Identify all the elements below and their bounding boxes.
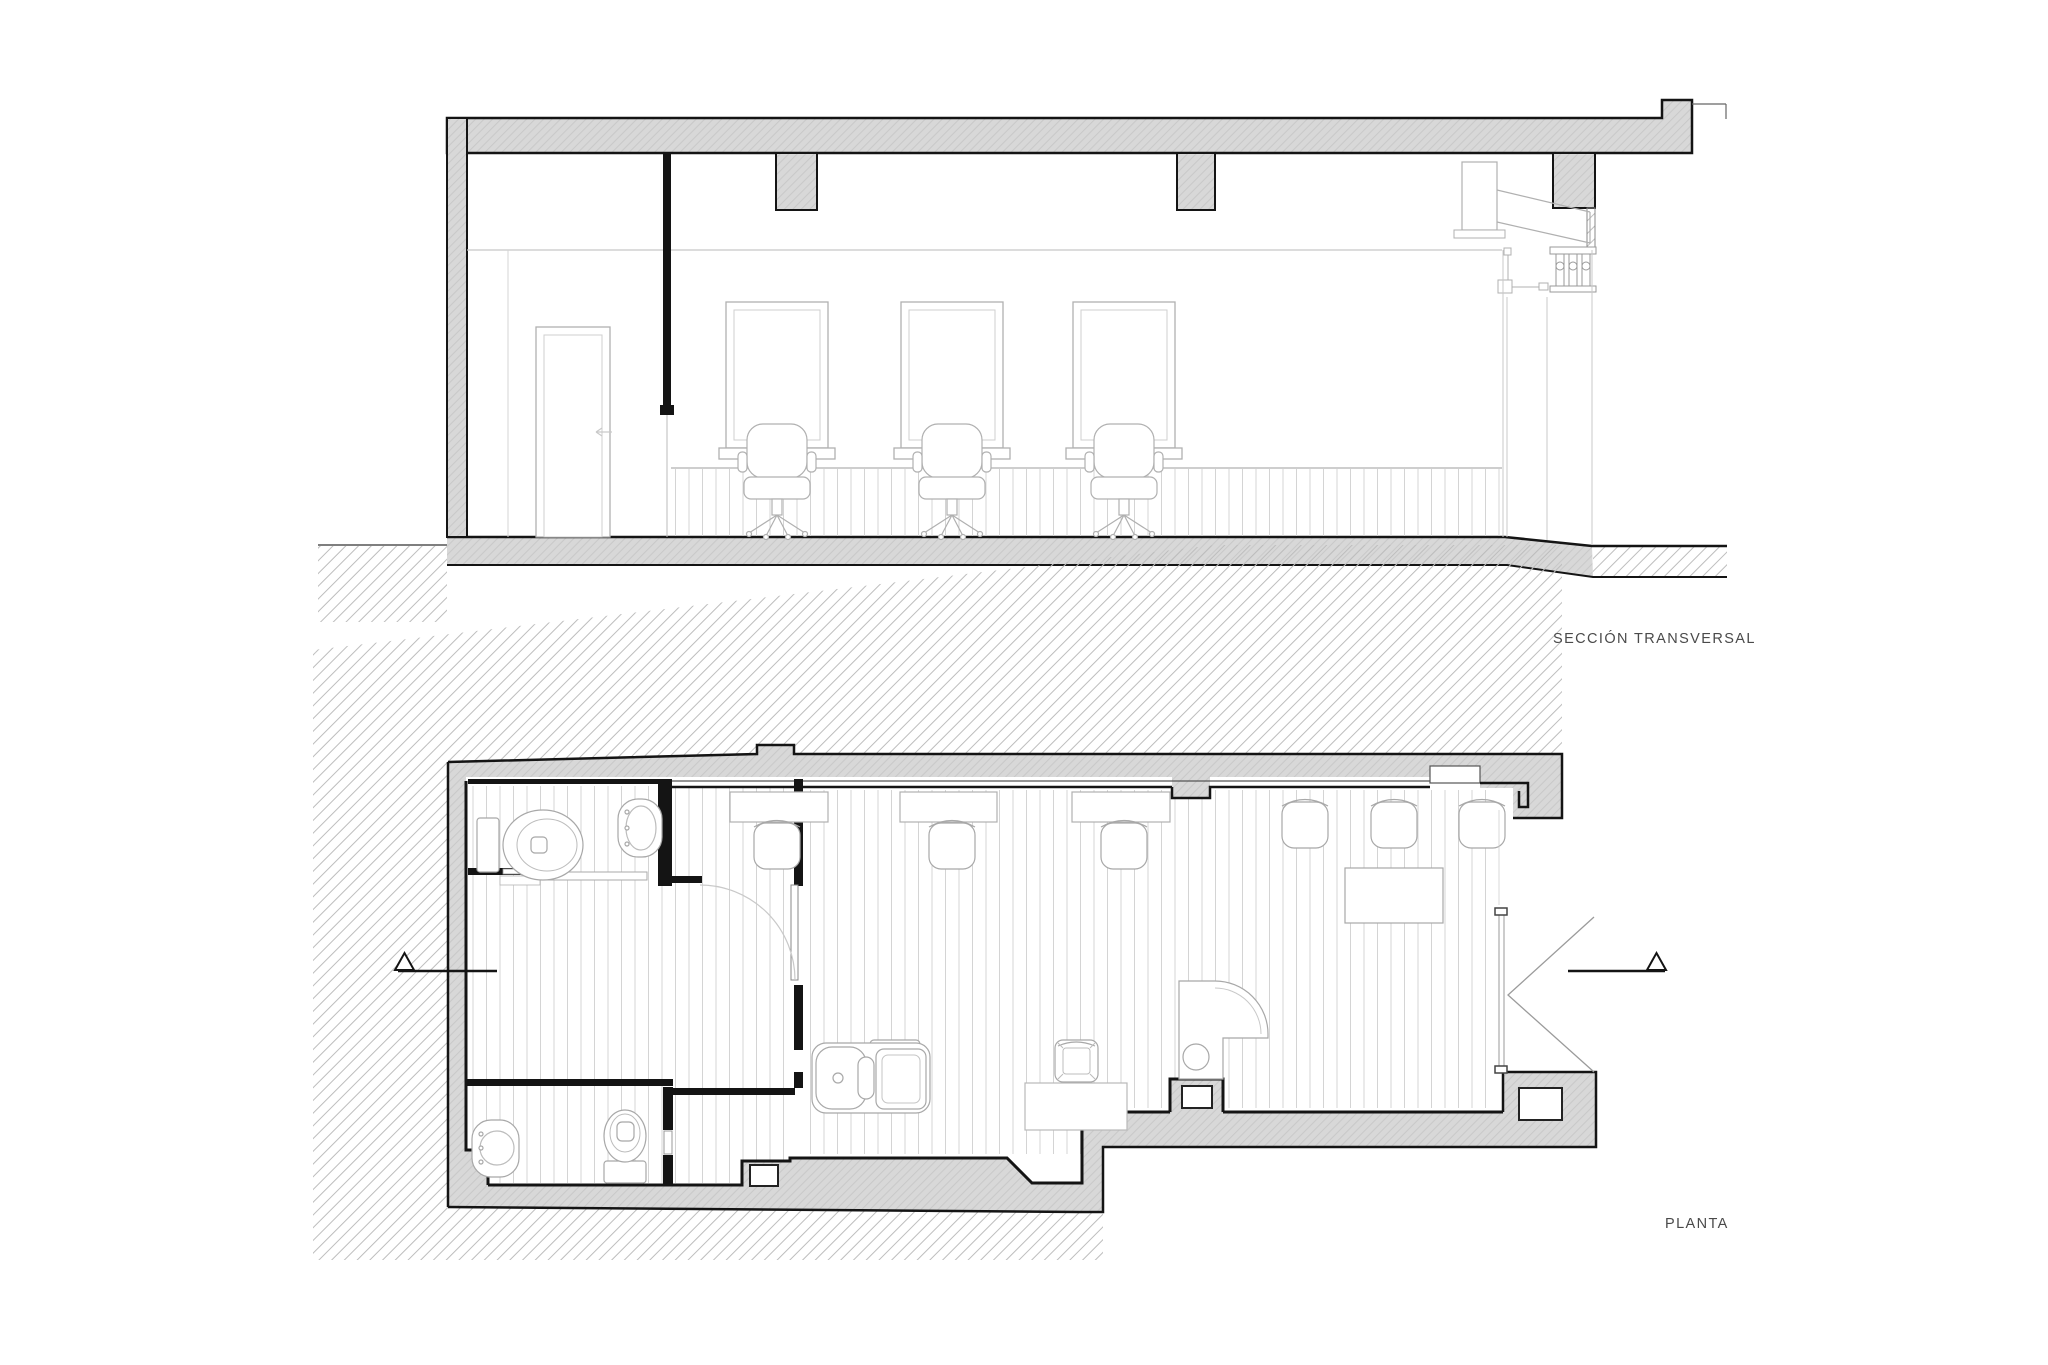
plan-styling-stations [730, 792, 1170, 822]
station-counter [1072, 792, 1170, 822]
station-counter [900, 792, 997, 822]
plan-backwash-unit [812, 1040, 930, 1113]
sink [472, 1120, 519, 1177]
plan-stool [1183, 1044, 1209, 1070]
toilet [604, 1110, 646, 1183]
plan-styling-chair [754, 821, 800, 870]
section-left-wall [447, 118, 467, 537]
section-drawing [318, 100, 1727, 622]
ceiling-beam [776, 153, 817, 210]
section-roof-slab [447, 100, 1726, 247]
cut-triangle-icon [1647, 953, 1666, 970]
plan-entrance [1495, 810, 1594, 1073]
section-door [536, 327, 612, 537]
plan-drawing [313, 545, 1666, 1260]
plan-waiting-chair [1371, 800, 1417, 849]
sheet: SECCIÓN TRANSVERSAL PLANTA [0, 0, 2048, 1365]
station-counter [730, 792, 828, 822]
storefront-glazing-lines [1503, 250, 1592, 545]
toilet [477, 810, 583, 880]
plan-table [1345, 868, 1443, 923]
ac-unit [1462, 162, 1497, 230]
plan-title: PLANTA [1665, 1216, 1729, 1232]
facade-edge-beam [1553, 153, 1595, 208]
section-ground-left [318, 545, 447, 622]
balustrade [1550, 247, 1596, 292]
plan-waiting-chair [1282, 800, 1328, 849]
plan-waiting-chair [1459, 800, 1505, 849]
drawing-canvas [0, 0, 2048, 1365]
plan-styling-chair [929, 821, 975, 870]
plan-styling-chair [1101, 821, 1147, 870]
ceiling-beam [1177, 153, 1215, 210]
pendant-sign [1498, 248, 1548, 293]
section-title: SECCIÓN TRANSVERSAL [1553, 631, 1756, 647]
sink [618, 799, 662, 857]
open-double-door [1508, 917, 1594, 1072]
